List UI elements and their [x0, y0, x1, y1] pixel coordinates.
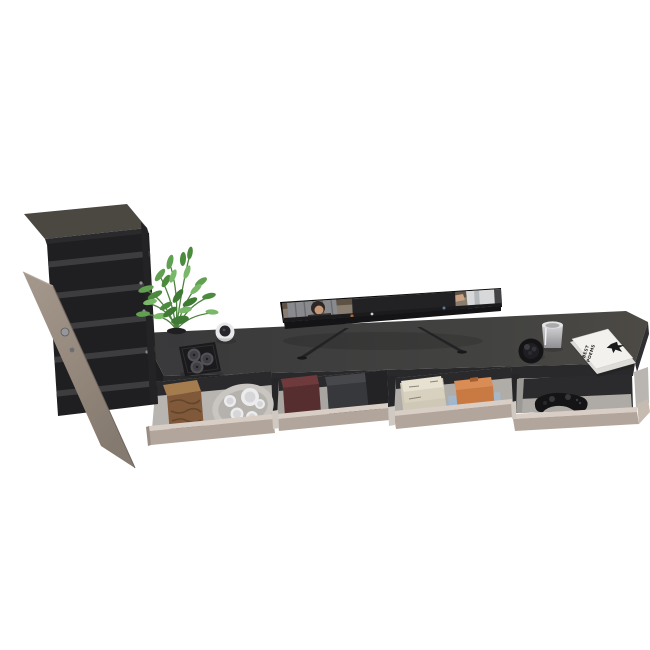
candle [191, 361, 204, 374]
door-hinge [70, 348, 75, 353]
door-hinge [61, 328, 69, 336]
drawer-2-open[interactable] [277, 370, 390, 431]
joystick [549, 396, 555, 402]
glass-candle-holder [542, 321, 563, 352]
drawer-1-open[interactable] [146, 371, 278, 446]
white-candle [216, 323, 237, 345]
product-render-stage: BEST POEMS [0, 0, 650, 650]
drawer-side-tab [272, 410, 279, 429]
furniture-scene: BEST POEMS [0, 0, 650, 650]
joystick [565, 394, 571, 400]
candle [188, 349, 201, 362]
drawer-side-tab [388, 406, 395, 426]
plant-pot [167, 328, 186, 347]
tall-cabinet [23, 204, 158, 468]
